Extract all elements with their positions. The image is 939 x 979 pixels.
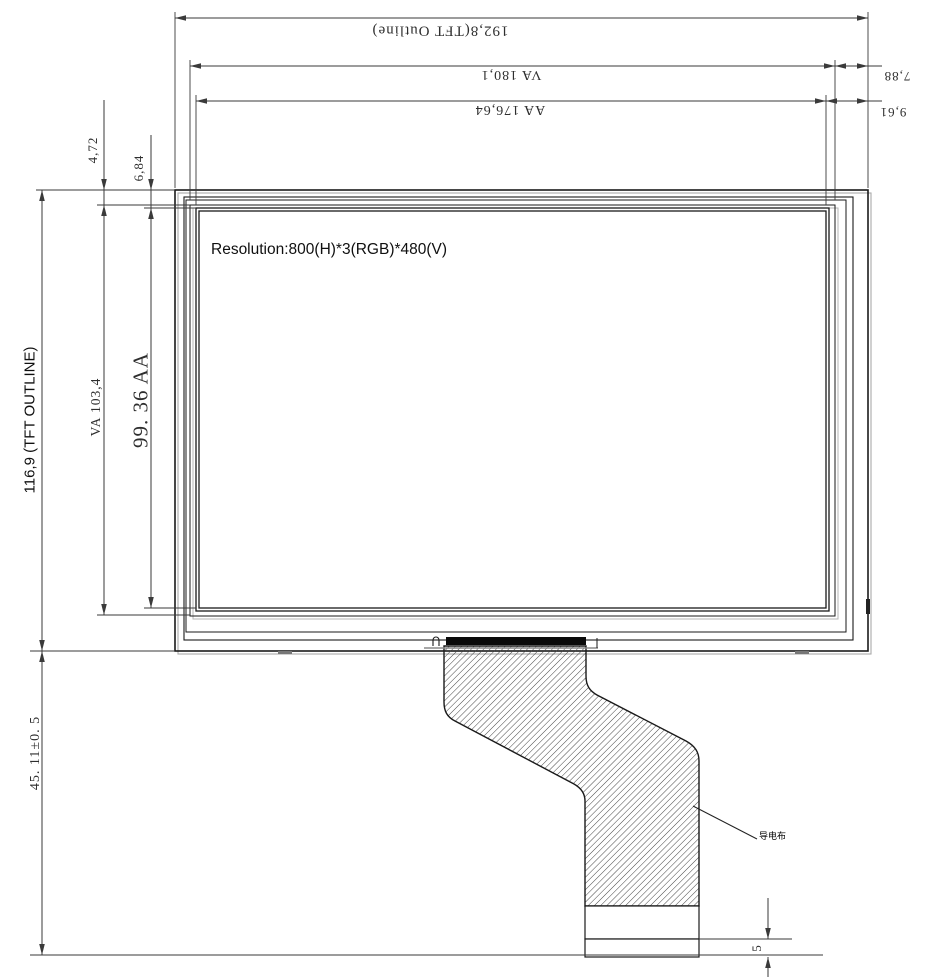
bottom-tab-left	[278, 651, 292, 654]
leader-line	[693, 806, 757, 839]
dimension-lines-group	[30, 12, 882, 977]
dim-tft-width-label: 192,8(TFT Outline)	[372, 22, 509, 39]
dim-va-width-label: VA 180,1	[481, 66, 542, 82]
frame-step-rect	[186, 200, 846, 632]
resolution-label: Resolution:800(H)*3(RGB)*480(V)	[211, 241, 447, 259]
dim-va-right-margin-label: 7,88	[884, 68, 911, 84]
panel-outline-group	[175, 190, 871, 654]
dim-aa-right-margin-label: 9,61	[880, 104, 907, 120]
tft-outline-drawing: 192,8(TFT Outline) VA 180,1 AA 176,64 7,…	[0, 0, 939, 979]
dim-aa-height-label: 99. 36 AA	[129, 352, 154, 448]
tft-outline-shadow	[178, 193, 871, 654]
fpc-leader-label: 导电布	[759, 829, 786, 842]
bottom-tab-right	[795, 651, 809, 654]
aa-rect-inner	[199, 211, 826, 608]
dim-va-height-label: VA 103,4	[88, 378, 104, 437]
fpc-tail-connector	[585, 939, 699, 957]
va-rect	[190, 205, 835, 616]
dim-fpc-length-label: 45. 11±0. 5	[28, 716, 44, 790]
fpc-tail-upper	[585, 906, 699, 939]
connector-bar	[446, 637, 586, 645]
aa-rect-outer	[196, 208, 829, 611]
dim-tft-height-label: 116,9 (TFT OUTLINE)	[22, 347, 39, 494]
dim-va-top-margin-label: 4,72	[85, 137, 101, 164]
drawing-canvas	[0, 0, 939, 979]
fpc-cable-group	[424, 637, 757, 957]
bezel-rect	[184, 197, 853, 640]
right-edge-tab	[866, 599, 870, 614]
connector-loop	[433, 637, 439, 646]
dim-aa-width-label: AA 176,64	[475, 101, 545, 117]
tft-outline-rect	[175, 190, 868, 651]
fpc-ribbon-hatched	[444, 646, 699, 906]
dim-fpc-tail-height-label: 5	[749, 944, 765, 952]
dim-aa-top-margin-label: 6,84	[131, 155, 147, 182]
va-outline-shadow	[193, 208, 838, 619]
